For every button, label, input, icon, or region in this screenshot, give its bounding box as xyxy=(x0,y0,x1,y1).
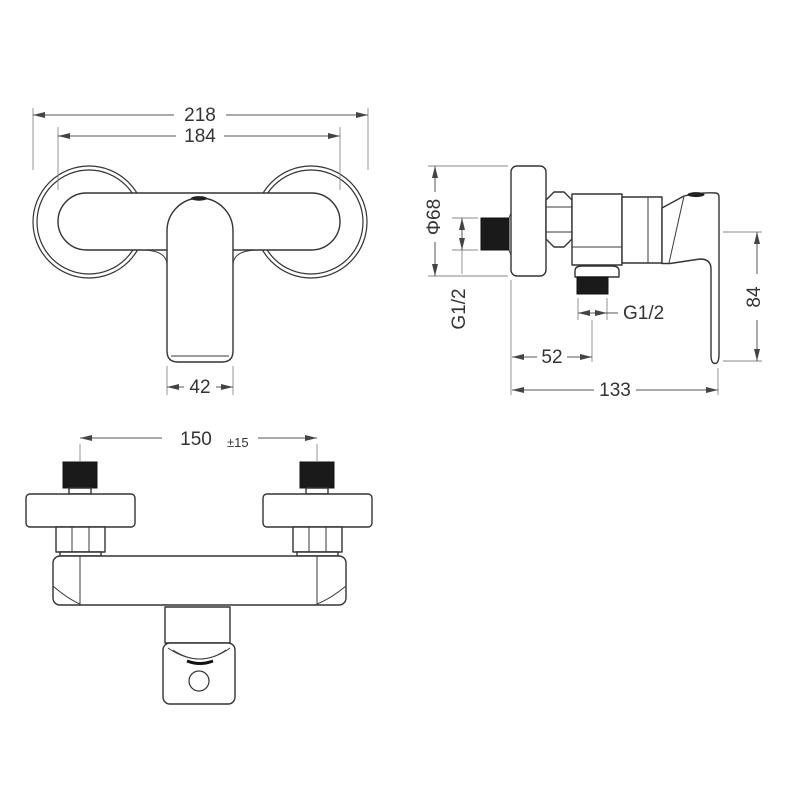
dim-label-overall-width: 218 xyxy=(184,105,216,126)
front-handle xyxy=(167,198,233,362)
side-outlet-shoulder xyxy=(575,266,619,277)
dim-label-escutcheon-diameter: Φ68 xyxy=(424,199,445,235)
side-handle-cap-mark xyxy=(688,192,705,197)
dim-label-total-depth: 133 xyxy=(599,380,631,401)
dim-label-handle-width: 42 xyxy=(189,377,210,398)
bottom-inlet-stud-right xyxy=(300,462,334,488)
front-handle-cap-mark xyxy=(191,196,207,201)
bottom-inlet-stud-left xyxy=(63,462,97,488)
drawing-sheet: 218 184 42 xyxy=(0,0,800,800)
sheet-background xyxy=(0,0,800,800)
bottom-stud-neck-left xyxy=(69,488,91,494)
bottom-hex-nut-left xyxy=(56,527,105,556)
bottom-body xyxy=(53,556,346,605)
dim-label-inlet-thread: G1/2 xyxy=(449,288,470,329)
bottom-handle-grip xyxy=(163,643,235,704)
dim-label-body-width: 184 xyxy=(184,126,216,147)
side-wall-plate xyxy=(511,166,546,276)
bottom-hex-nut-right xyxy=(293,527,342,556)
side-hex-nut xyxy=(546,192,572,247)
bottom-stud-neck-right xyxy=(306,488,328,494)
side-outlet-thread xyxy=(577,277,608,294)
bottom-escutcheon-left xyxy=(26,494,135,527)
bottom-handle-neck xyxy=(165,607,230,643)
technical-drawing: 218 184 42 xyxy=(0,0,800,800)
side-inlet-thread xyxy=(481,218,509,250)
bottom-escutcheon-right xyxy=(263,494,372,527)
dim-label-handle-length: 84 xyxy=(744,286,765,308)
dim-label-wall-to-outlet: 52 xyxy=(541,347,562,368)
side-valve-body xyxy=(572,194,622,265)
side-bonnet xyxy=(622,197,662,263)
dim-label-inlet-spacing: 150 xyxy=(180,429,212,450)
dim-label-outlet-thread: G1/2 xyxy=(623,303,664,324)
dim-label-inlet-spacing-tolerance: ±15 xyxy=(227,435,249,450)
